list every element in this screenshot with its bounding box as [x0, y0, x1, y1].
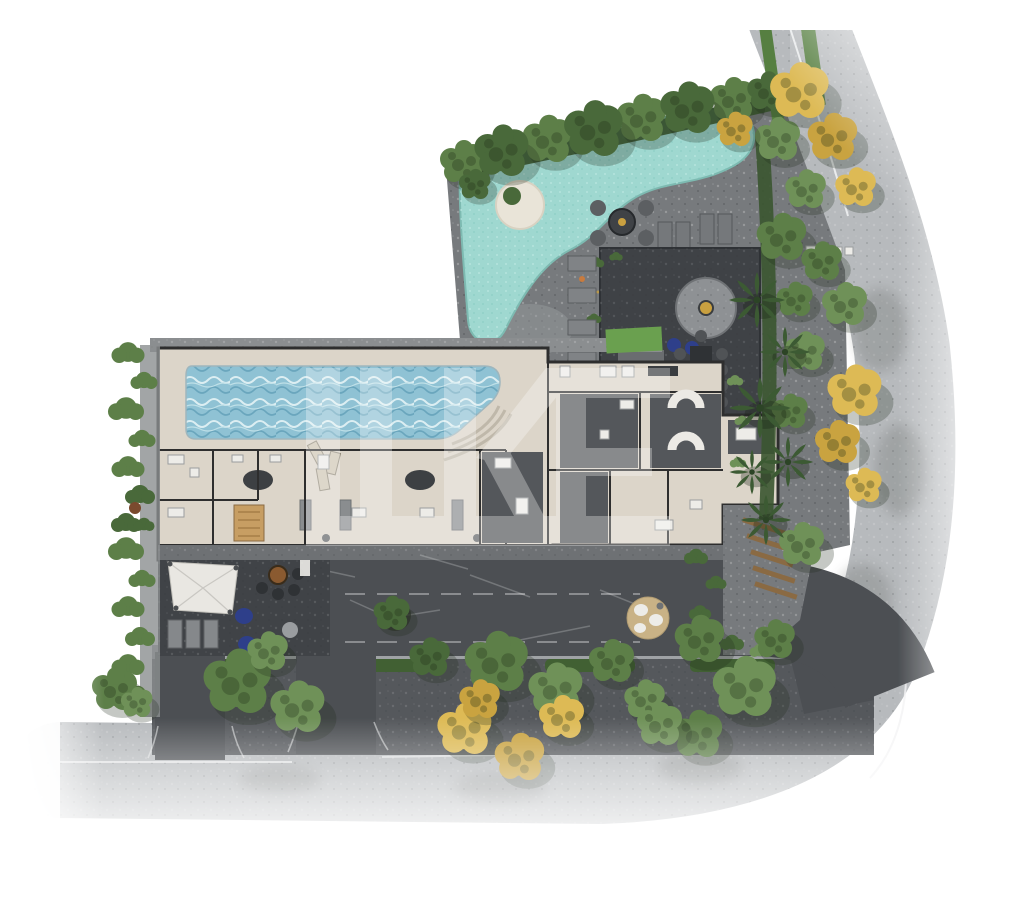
terrace-loungers: [168, 620, 218, 648]
palm-tree: [729, 272, 785, 328]
palm-tree: [760, 327, 810, 377]
palm-tree: [729, 377, 791, 439]
palm-tree: [741, 495, 791, 545]
amenity-terrace: [158, 560, 330, 656]
canopy-tent: [168, 562, 239, 615]
palm-tree: [730, 450, 775, 495]
site-plan-canvas: [0, 0, 1024, 919]
sand-lounge: [627, 597, 669, 639]
site-plan-rendering: [0, 0, 1024, 919]
grass-patch: [605, 327, 662, 354]
pool-island: [496, 181, 544, 229]
sauna: [234, 505, 264, 541]
terrace-table: [282, 622, 298, 638]
red-shrub: [129, 502, 141, 514]
island-shrub: [503, 187, 521, 205]
stone-fire-circle: [676, 278, 736, 338]
